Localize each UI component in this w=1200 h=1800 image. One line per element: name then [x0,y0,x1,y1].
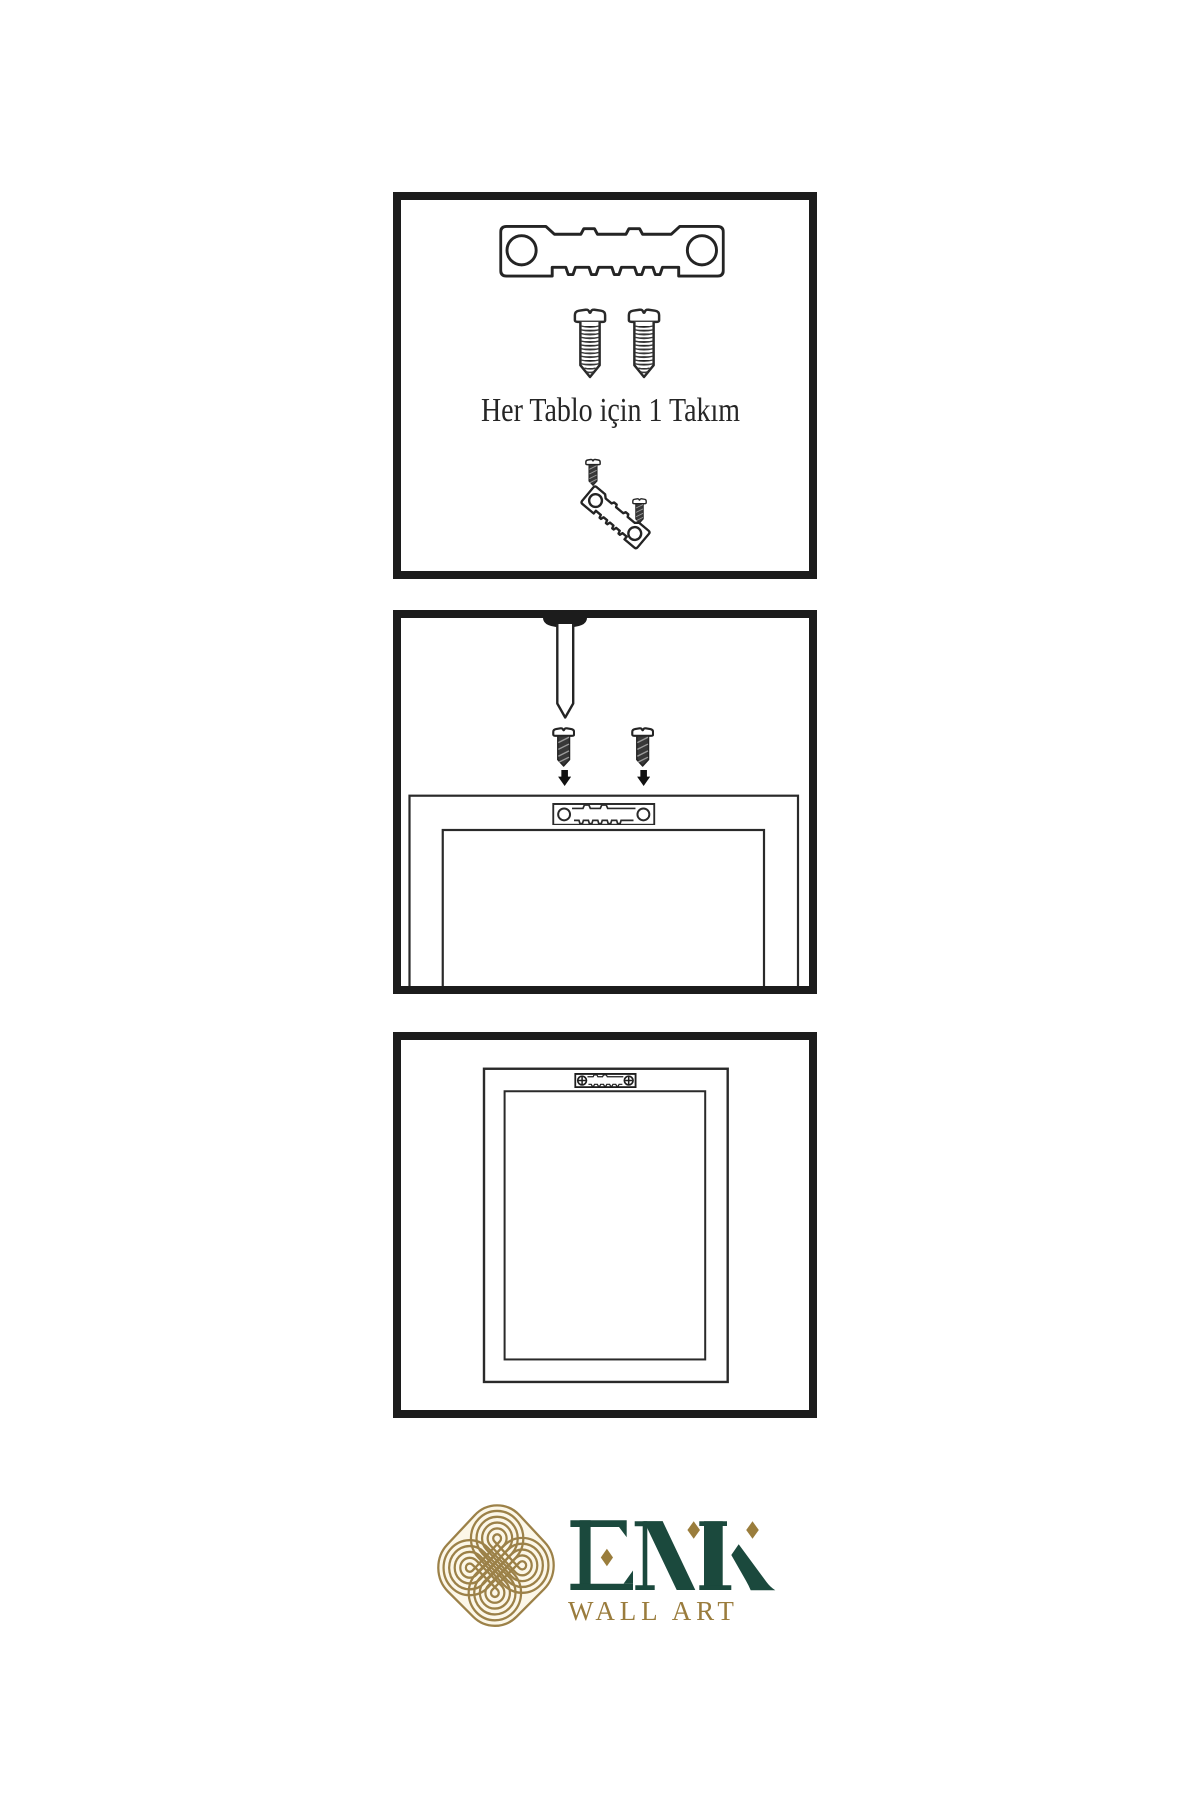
svg-text:Her Tablo için 1 Takım: Her Tablo için 1 Takım [481,392,740,429]
svg-text:WALL ART: WALL ART [568,1596,739,1626]
